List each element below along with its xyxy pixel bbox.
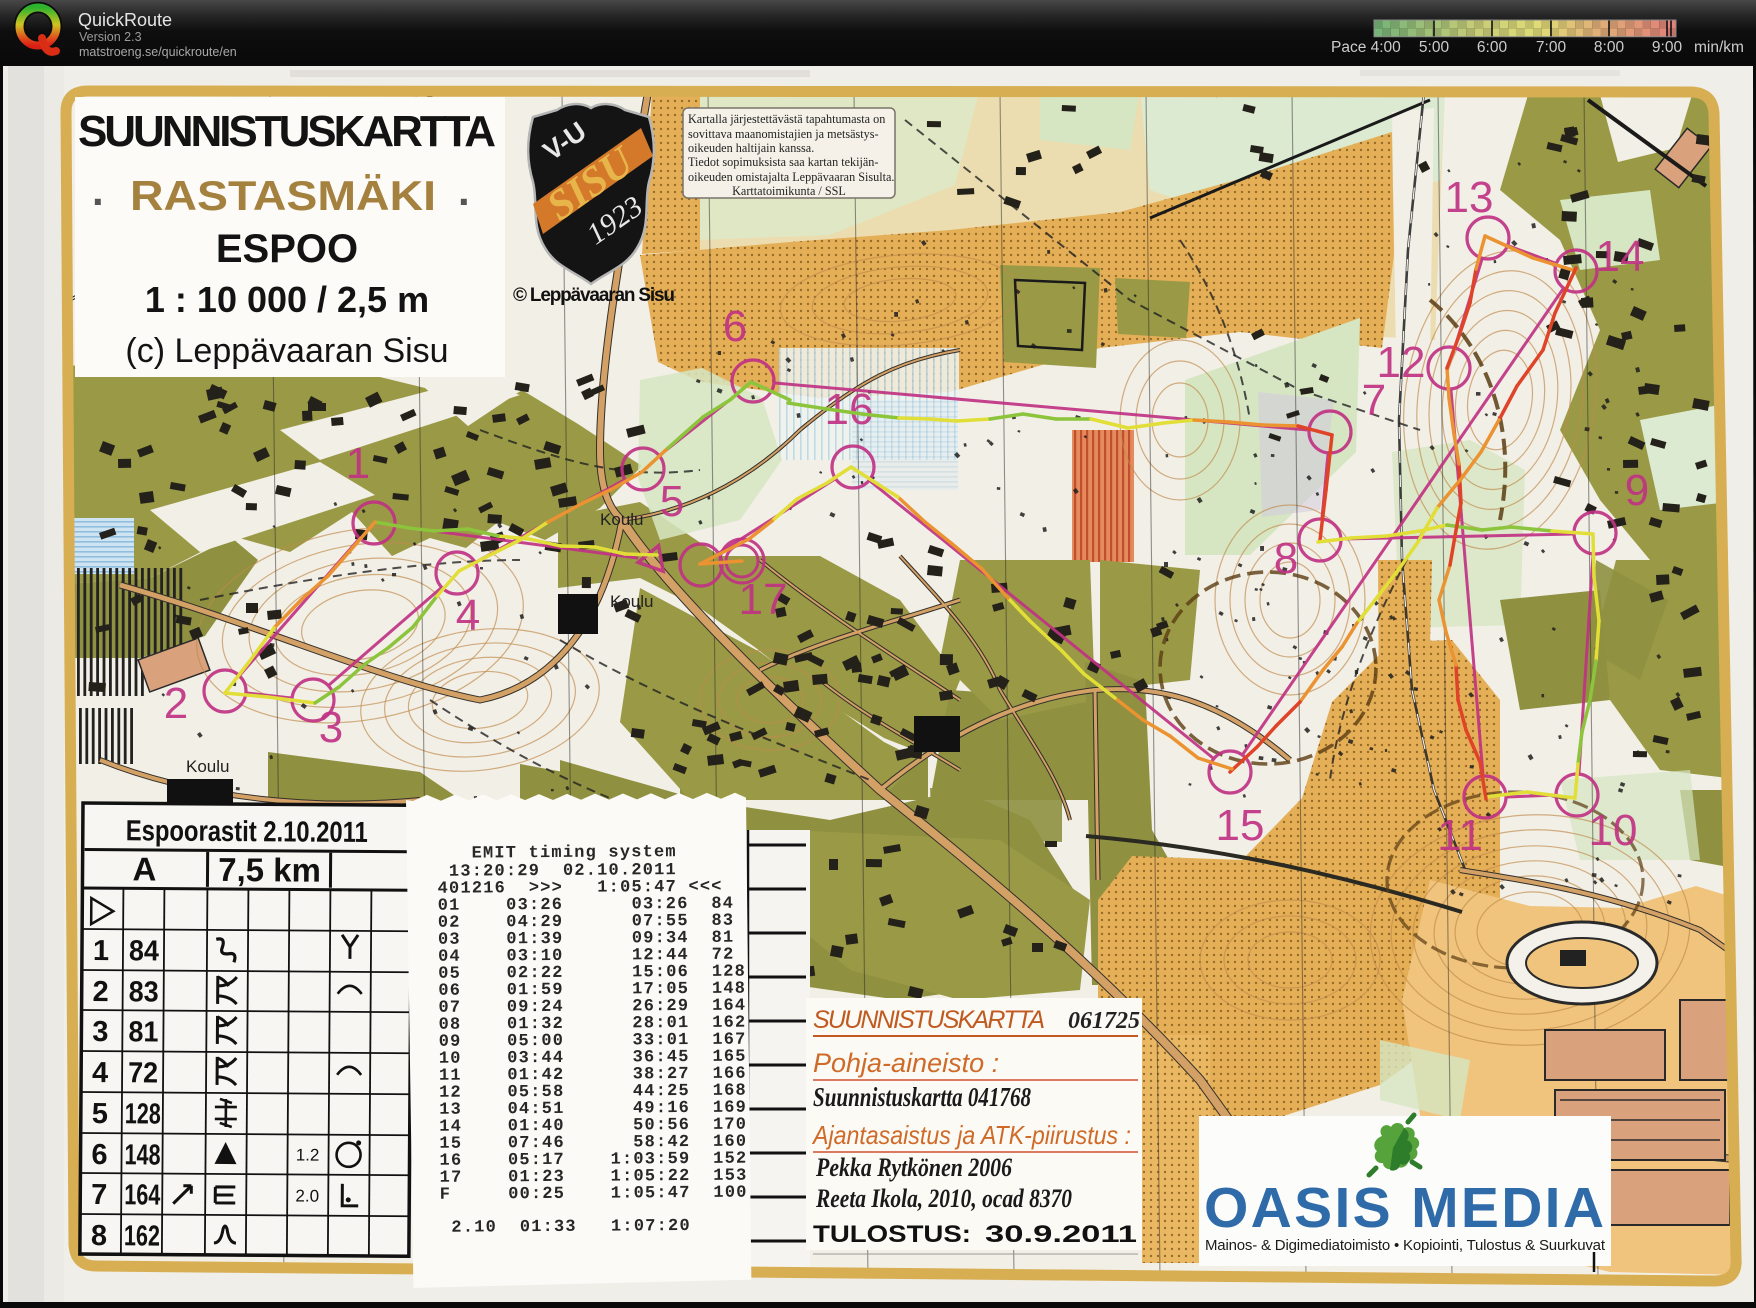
svg-text:SUUNNISTUSKARTTA: SUUNNISTUSKARTTA [813, 1006, 1045, 1034]
svg-text:matstroeng.se/quickroute/en: matstroeng.se/quickroute/en [79, 45, 237, 59]
svg-text:Espoorastit 2.10.2011: Espoorastit 2.10.2011 [126, 815, 368, 849]
svg-text:Suunnistuskartta 041768: Suunnistuskartta 041768 [813, 1082, 1031, 1112]
svg-text:84: 84 [129, 935, 159, 967]
svg-text:10: 10 [1589, 806, 1638, 855]
svg-text:2: 2 [164, 679, 188, 728]
svg-text:sovittava maanomistajien ja me: sovittava maanomistajien ja metsästys- [688, 127, 879, 141]
svg-text:A: A [133, 850, 157, 887]
svg-text:F 00:25 1:05:47 100: F 00:25 1:05:47 100 [440, 1184, 748, 1205]
svg-text:min/km: min/km [1694, 39, 1744, 56]
svg-text:Mainos- & Digimediatoimisto •: Mainos- & Digimediatoimisto • Kopiointi,… [1205, 1237, 1606, 1254]
svg-text:Tiedot sopimuksista saa kartan: Tiedot sopimuksista saa kartan tekijän- [688, 155, 878, 169]
svg-text:15: 15 [1216, 801, 1265, 850]
svg-text:5: 5 [660, 477, 684, 526]
svg-text:11: 11 [1437, 811, 1483, 860]
svg-text:3: 3 [319, 703, 343, 752]
svg-text:Koulu: Koulu [186, 757, 229, 776]
svg-text:OASIS MEDIA: OASIS MEDIA [1204, 1176, 1604, 1240]
svg-text:Koulu: Koulu [610, 592, 653, 611]
svg-text:128: 128 [125, 1098, 161, 1130]
svg-text:17: 17 [739, 575, 788, 624]
svg-text:ESPOO: ESPOO [216, 227, 358, 271]
svg-text:14: 14 [1596, 232, 1645, 281]
svg-text:3: 3 [92, 1016, 108, 1048]
svg-text:RASTASMÄKI: RASTASMÄKI [130, 172, 436, 219]
svg-text:TULOSTUS:: TULOSTUS: [813, 1221, 971, 1248]
svg-text:Version 2.3: Version 2.3 [79, 30, 142, 44]
svg-text:8: 8 [91, 1220, 107, 1252]
svg-text:7,5 km: 7,5 km [218, 851, 321, 889]
svg-text:6:00: 6:00 [1477, 39, 1508, 56]
svg-text:1: 1 [346, 439, 370, 488]
svg-text:© Leppävaaran Sisu: © Leppävaaran Sisu [513, 285, 675, 306]
svg-text:QuickRoute: QuickRoute [78, 10, 172, 30]
svg-text:7:00: 7:00 [1536, 39, 1567, 56]
svg-text:2.0: 2.0 [295, 1186, 319, 1205]
svg-text:148: 148 [124, 1139, 160, 1171]
svg-text:9: 9 [1625, 466, 1649, 515]
svg-text:Karttatoimikunta / SSL: Karttatoimikunta / SSL [732, 184, 846, 198]
svg-text:5: 5 [92, 1098, 108, 1130]
svg-text:Koulu: Koulu [600, 510, 643, 529]
svg-text:7: 7 [91, 1179, 107, 1211]
svg-text:4: 4 [456, 591, 480, 640]
svg-text:1 : 10 000 / 2,5 m: 1 : 10 000 / 2,5 m [145, 279, 429, 320]
svg-text:Ajantasaistus ja ATK-piirustus: Ajantasaistus ja ATK-piirustus : [811, 1120, 1131, 1150]
svg-text:2: 2 [93, 976, 109, 1008]
svg-text:8:00: 8:00 [1594, 39, 1625, 56]
svg-text:Pohja-aineisto :: Pohja-aineisto : [813, 1048, 999, 1078]
svg-text:72: 72 [128, 1057, 158, 1089]
svg-text:oikeuden haltijain kanssa.: oikeuden haltijain kanssa. [688, 141, 814, 155]
svg-text:Pekka Rytkönen 2006: Pekka Rytkönen 2006 [815, 1153, 1012, 1182]
svg-text:SUUNNISTUSKARTTA: SUUNNISTUSKARTTA [78, 107, 496, 156]
svg-text:oikeuden omistajalta Leppävaar: oikeuden omistajalta Leppävaaran Sisulta… [688, 170, 894, 184]
svg-text:12: 12 [1377, 338, 1426, 387]
svg-text:1: 1 [93, 935, 109, 967]
svg-text:Kartalla järjestettävästä tapa: Kartalla järjestettävästä tapahtumasta o… [688, 112, 885, 126]
svg-text:83: 83 [129, 976, 159, 1008]
svg-text:30.9.2011: 30.9.2011 [985, 1221, 1137, 1248]
svg-text:(c) Leppävaaran Sisu: (c) Leppävaaran Sisu [125, 332, 448, 370]
svg-text:2.10 01:33 1:07:20: 2.10 01:33 1:07:20 [440, 1217, 691, 1238]
svg-text:.: . [92, 167, 104, 214]
svg-text:4: 4 [92, 1057, 108, 1089]
svg-text:.: . [458, 167, 470, 214]
svg-text:8: 8 [1274, 534, 1298, 583]
svg-text:13: 13 [1445, 173, 1494, 222]
svg-text:Pace 4:00: Pace 4:00 [1331, 39, 1401, 56]
svg-text:061725: 061725 [1068, 1008, 1140, 1034]
svg-text:5:00: 5:00 [1419, 39, 1450, 56]
svg-text:81: 81 [128, 1016, 158, 1048]
svg-text:6: 6 [723, 302, 747, 351]
svg-text:164: 164 [124, 1179, 160, 1211]
svg-text:Reeta Ikola, 2010, ocad 8370: Reeta Ikola, 2010, ocad 8370 [815, 1184, 1072, 1213]
svg-text:162: 162 [124, 1220, 160, 1252]
svg-text:6: 6 [91, 1139, 107, 1171]
svg-text:1.2: 1.2 [296, 1145, 320, 1164]
svg-text:9:00: 9:00 [1652, 39, 1683, 56]
